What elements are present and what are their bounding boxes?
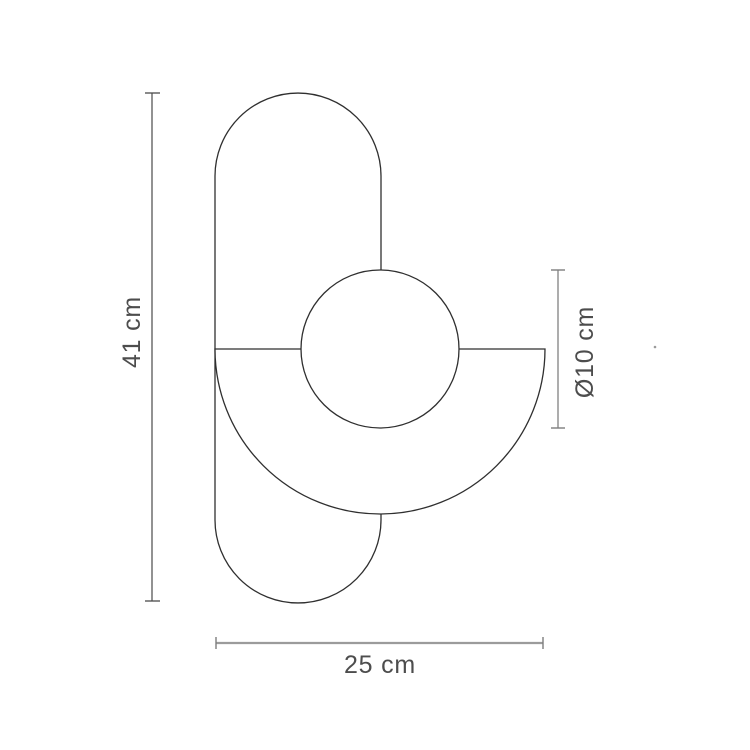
speck-dot [654, 346, 657, 349]
width-dimension: 25 cm [216, 637, 543, 679]
dimension-drawing-canvas: 41 cm Ø10 cm 25 cm [0, 0, 750, 750]
height-dimension-label: 41 cm [118, 296, 146, 368]
width-dimension-label: 25 cm [344, 651, 416, 679]
dimension-drawing: 41 cm Ø10 cm 25 cm [0, 0, 750, 750]
product-outline-group [215, 93, 545, 603]
diameter-dimension-label: Ø10 cm [571, 306, 599, 398]
height-dimension: 41 cm [118, 93, 160, 601]
sphere-outline [301, 270, 459, 428]
diameter-dimension: Ø10 cm [551, 270, 599, 428]
